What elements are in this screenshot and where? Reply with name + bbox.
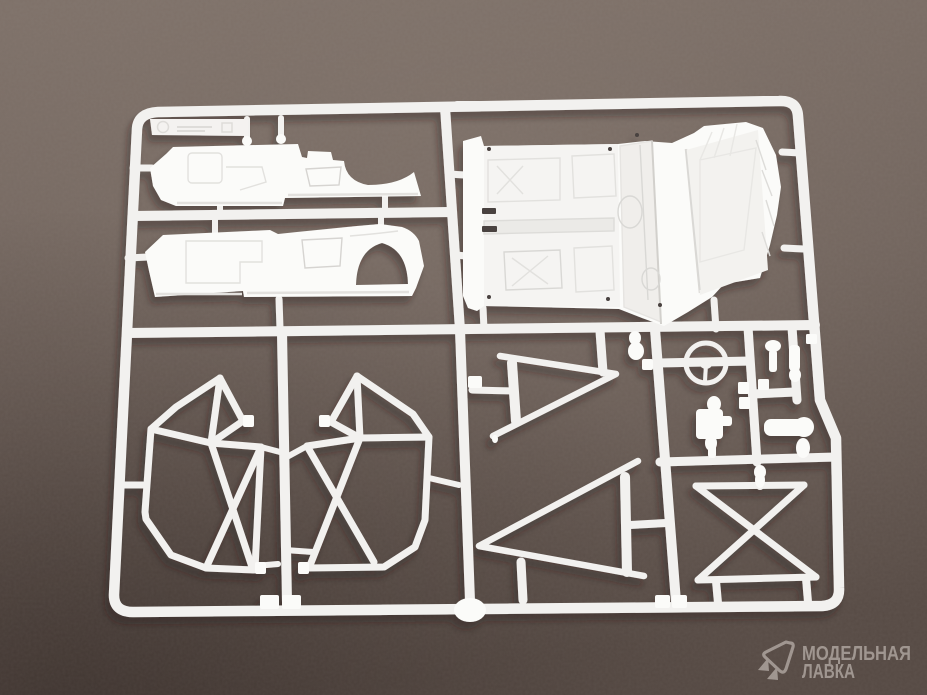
svg-text:ЛАВКА: ЛАВКА <box>802 661 855 683</box>
